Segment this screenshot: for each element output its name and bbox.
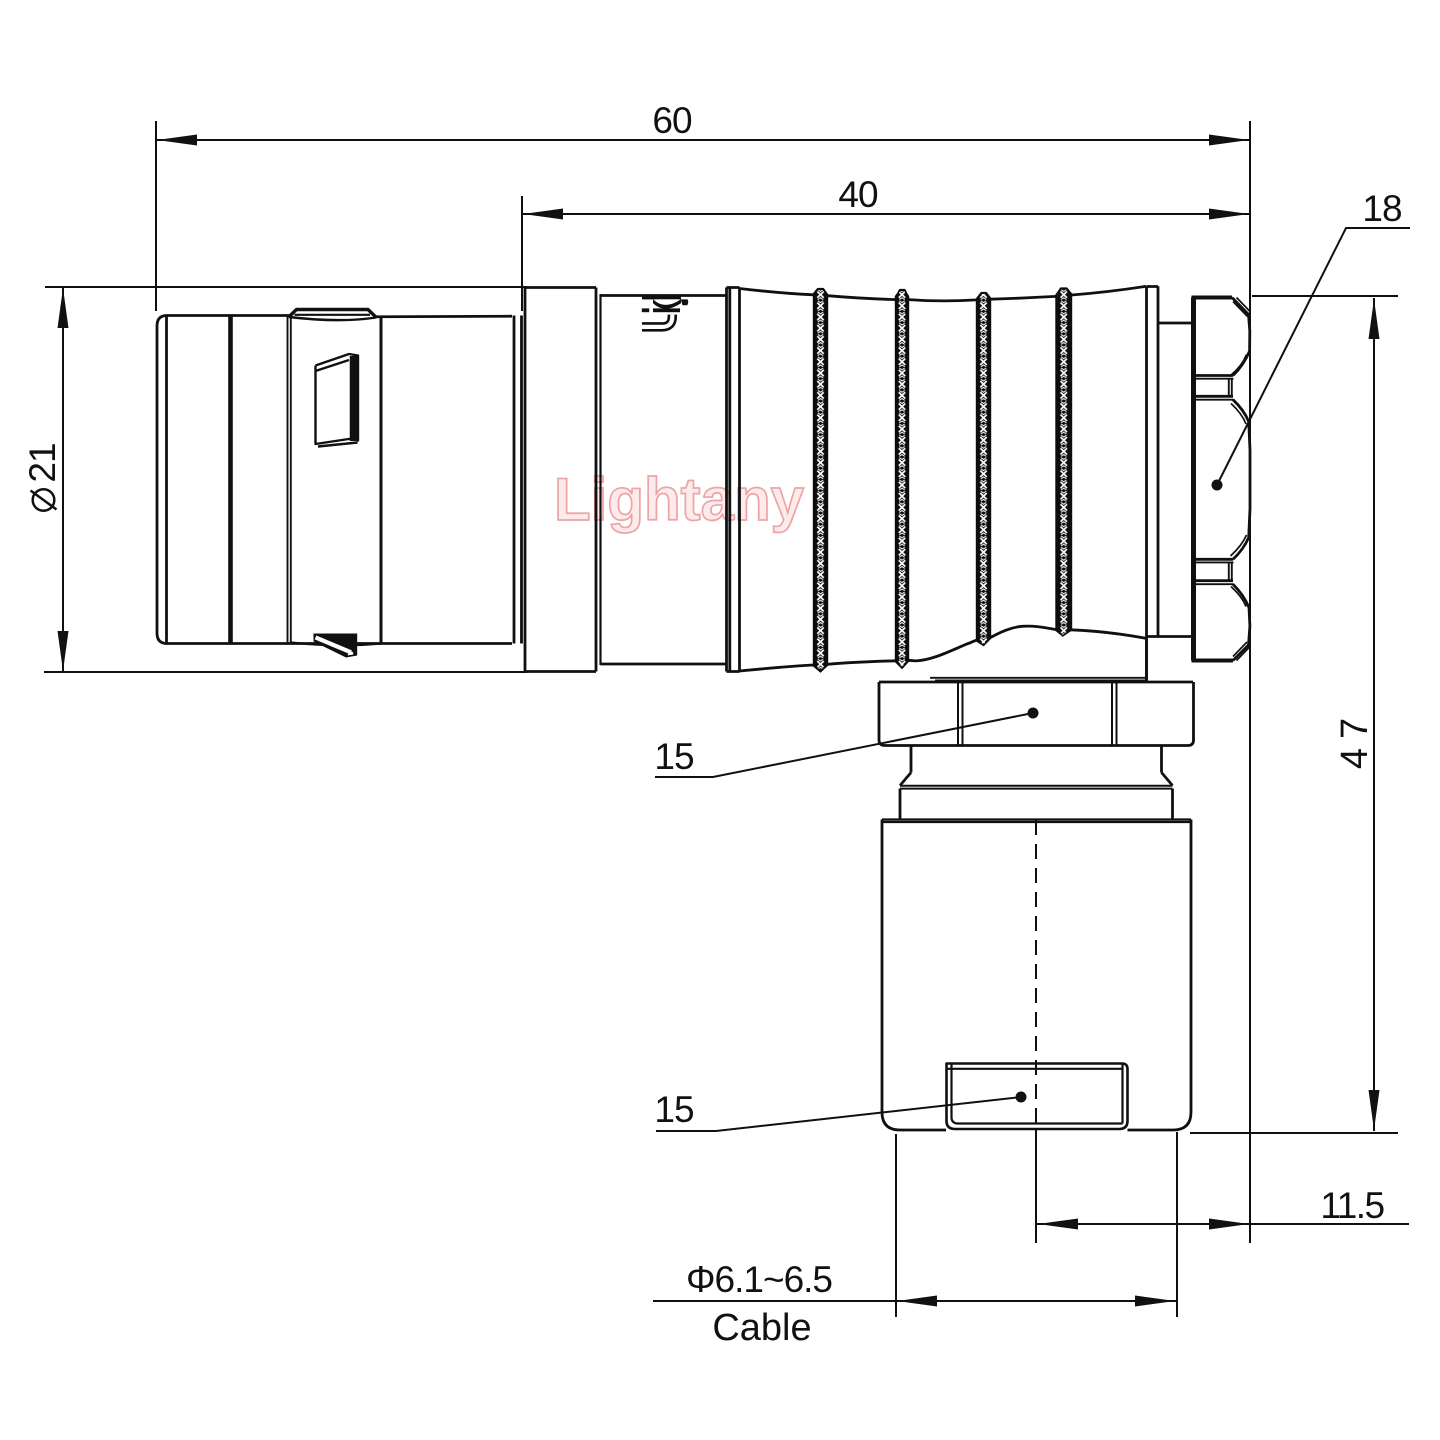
svg-text:18: 18 [1362, 188, 1401, 229]
svg-text:11.5: 11.5 [1320, 1185, 1384, 1226]
svg-text:Lightany: Lightany [554, 466, 805, 533]
svg-text:47: 47 [1334, 709, 1376, 769]
svg-text:40: 40 [838, 174, 878, 215]
svg-text:Φ6.1~6.5: Φ6.1~6.5 [686, 1259, 832, 1300]
svg-text:15: 15 [654, 736, 694, 777]
svg-text:21: 21 [22, 443, 63, 482]
svg-text:60: 60 [652, 100, 692, 141]
svg-text:Cable: Cable [712, 1307, 811, 1349]
svg-text:15: 15 [654, 1089, 694, 1130]
